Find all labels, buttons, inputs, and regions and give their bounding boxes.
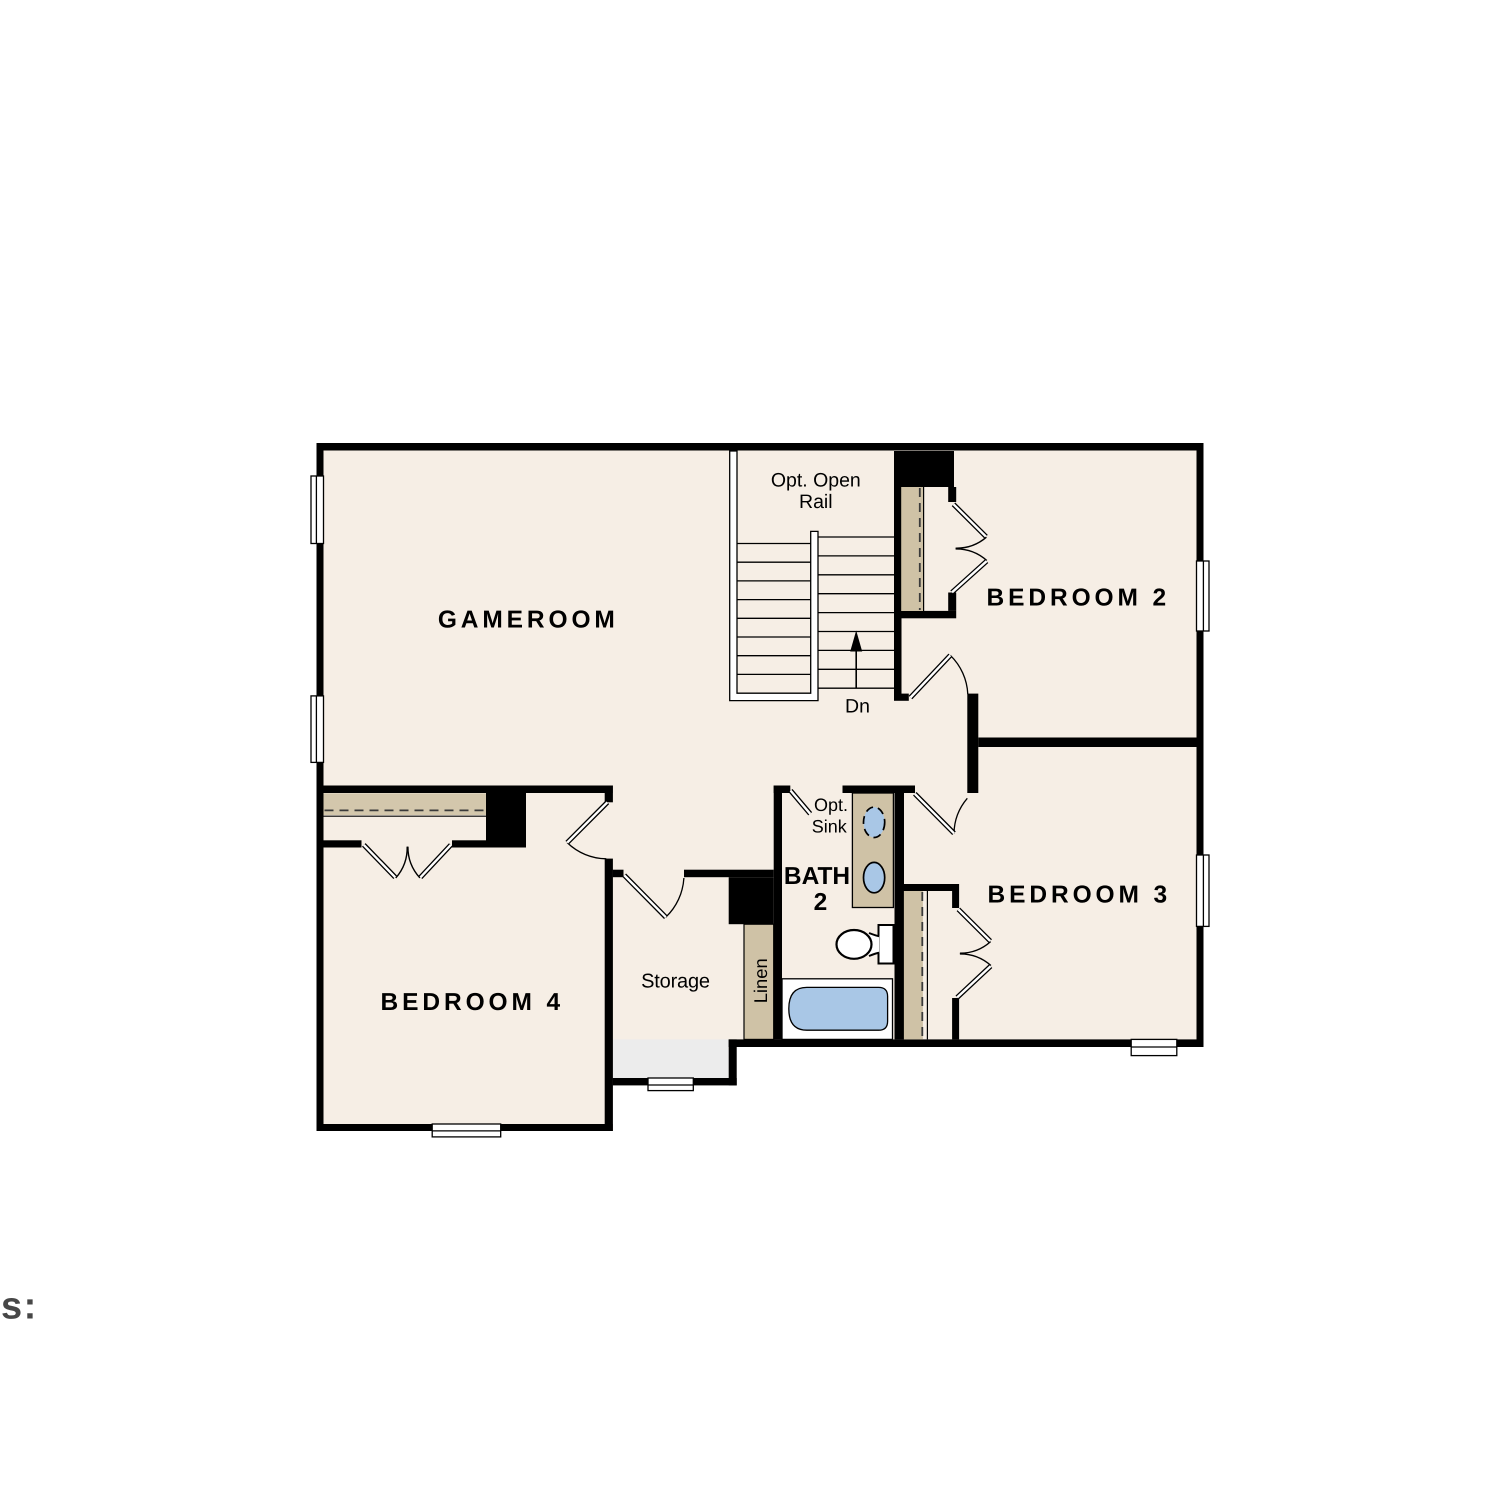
svg-text:Rail: Rail (799, 491, 833, 513)
svg-text:Dn: Dn (845, 696, 870, 718)
svg-text:Opt.: Opt. (814, 795, 848, 815)
svg-text:2: 2 (814, 889, 828, 916)
svg-text:Linen: Linen (750, 958, 771, 1003)
svg-text:Opt. Open: Opt. Open (771, 470, 861, 492)
svg-text:BEDROOM 2: BEDROOM 2 (987, 584, 1170, 611)
svg-text:s:: s: (1, 1286, 38, 1328)
svg-text:Sink: Sink (812, 816, 848, 836)
svg-text:GAMEROOM: GAMEROOM (438, 607, 619, 634)
svg-text:BEDROOM 4: BEDROOM 4 (381, 989, 564, 1016)
svg-text:BEDROOM 3: BEDROOM 3 (988, 881, 1171, 908)
svg-text:BATH: BATH (784, 863, 850, 890)
svg-text:Storage: Storage (641, 970, 710, 992)
